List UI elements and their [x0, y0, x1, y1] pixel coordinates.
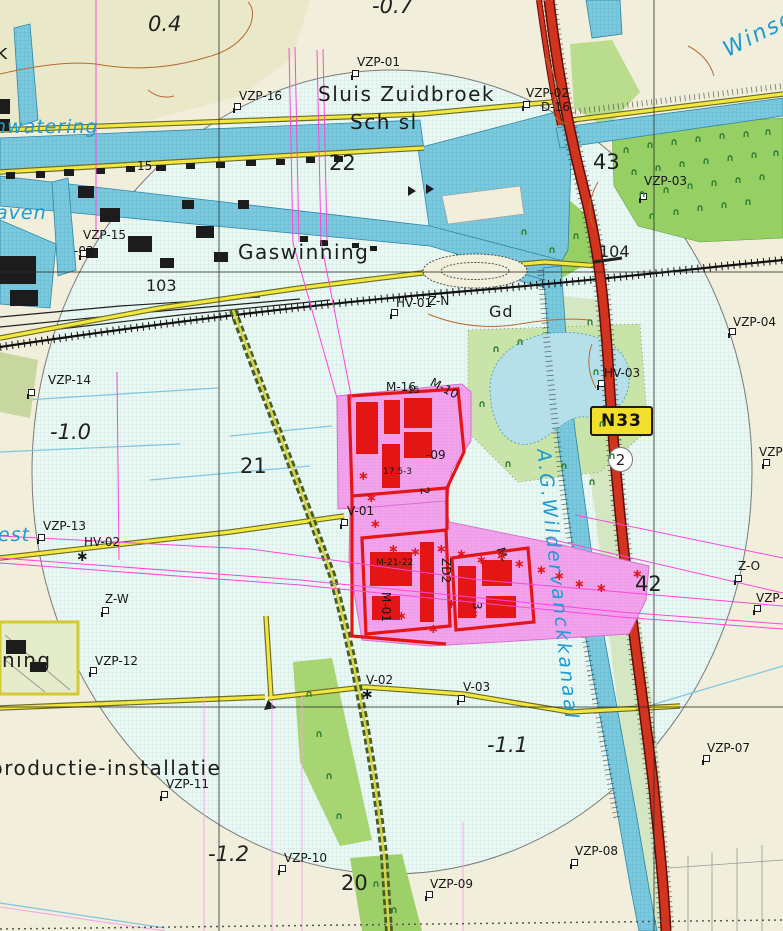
map-base-layers	[0, 0, 783, 931]
farm-compound	[0, 622, 78, 694]
racetrack-oval	[423, 254, 527, 288]
topographic-map: N33 2 Sluis ZuidbroekSch slGaswinningGdp…	[0, 0, 783, 931]
corner-pond	[586, 0, 622, 38]
